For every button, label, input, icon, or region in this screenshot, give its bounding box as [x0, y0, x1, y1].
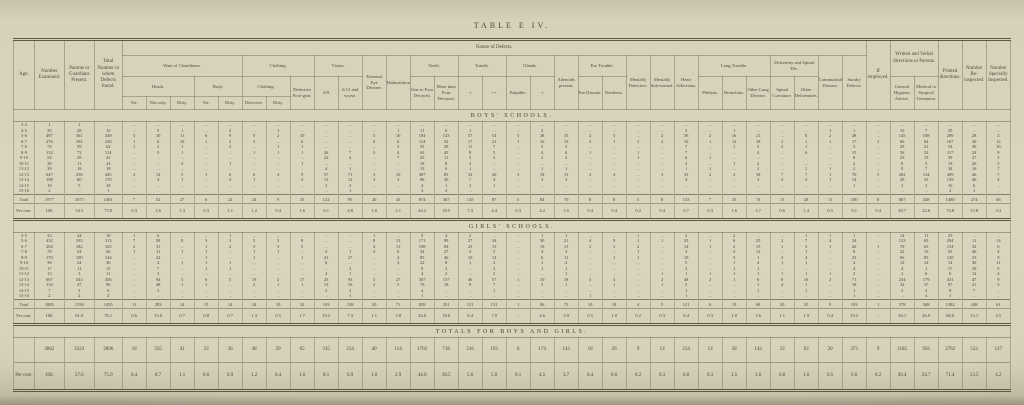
section-heading: BOYS' SCHOOLS. — [14, 110, 1011, 122]
table-cell: 18 — [602, 299, 626, 308]
table-cell: 70 — [554, 194, 578, 203]
table-cell: 315 — [314, 337, 338, 362]
table-cell: 0.4 — [602, 203, 626, 219]
table-cell: 0.3 — [698, 203, 722, 219]
column-header: Teeth. — [410, 56, 458, 77]
table-cell: 4.5 — [530, 362, 554, 390]
table-cell: 6.0 — [674, 362, 698, 390]
table-cell: 448 — [914, 194, 938, 203]
table-cell: 8 — [650, 194, 674, 203]
table-cell: 1480 — [938, 194, 962, 203]
table-cell: 68 — [746, 299, 770, 308]
table-cell: 20 — [818, 337, 842, 362]
table-cell: 11 — [818, 194, 842, 203]
table-cell: 7.3 — [458, 203, 482, 219]
table-cell: 0.3 — [506, 203, 530, 219]
table-cell: 1150 — [64, 299, 94, 308]
table-cell: ... — [506, 308, 530, 324]
page-edge-shadow — [0, 395, 1024, 405]
table-cell: 0.2 — [866, 362, 890, 390]
table-cell: 20 — [362, 194, 386, 203]
table-cell: 1702 — [410, 337, 434, 362]
table-cell: 63 — [794, 337, 818, 362]
table-cell: 3.7 — [746, 203, 770, 219]
column-header: Number Re-inspected. — [962, 40, 986, 110]
table-cell: 4.6 — [530, 308, 554, 324]
table-cell: 1.6 — [794, 362, 818, 390]
column-header: ++ — [482, 77, 506, 110]
table-cell: 283 — [146, 299, 170, 308]
column-header: More than Four Decayed. — [434, 77, 458, 110]
table-cell: 6 — [506, 337, 530, 362]
table-cell: 44.0 — [410, 308, 434, 324]
table-cell: 1.9 — [794, 308, 818, 324]
row-label — [14, 337, 35, 362]
table-cell: 0.3 — [698, 308, 722, 324]
row-label: Total — [14, 299, 35, 308]
table-cell: 2896 — [94, 337, 122, 362]
table-cell: 1.0 — [722, 308, 746, 324]
table-cell: 193 — [314, 299, 338, 308]
table-cell: 0.3 — [122, 203, 146, 219]
table-cell: 43 — [386, 194, 410, 203]
table-cell: 274 — [962, 194, 986, 203]
table-cell: 36 — [218, 337, 242, 362]
table-cell: 607 — [890, 194, 914, 203]
column-header: Printed directions. — [938, 40, 962, 110]
column-header: Palpable. — [506, 77, 530, 110]
table-cell: 2.9 — [386, 362, 410, 390]
table-cell: 10.2 — [314, 308, 338, 324]
table-cell: 0.6 — [602, 362, 626, 390]
table-cell: 6.4 — [458, 308, 482, 324]
table-cell: 66 — [986, 194, 1010, 203]
table-cell: 0.6 — [122, 308, 146, 324]
table-cell: 1.6 — [290, 362, 314, 390]
table-cell: 3.6 — [746, 362, 770, 390]
table-cell: 0.5 — [818, 203, 842, 219]
table-cell: 1977 — [34, 194, 64, 203]
table-cell: 0.2 — [626, 362, 650, 390]
table-cell: 367 — [434, 194, 458, 203]
table-cell: 24 — [242, 194, 266, 203]
table-cell: 0.7 — [170, 308, 194, 324]
column-header: Deafness. — [602, 77, 626, 110]
table-cell: 4.2 — [530, 203, 554, 219]
table-cell: 32 — [290, 299, 314, 308]
table-cell: 74 — [746, 194, 770, 203]
table-cell: 1.2 — [242, 203, 266, 219]
column-header: Sundry Defects. — [842, 56, 866, 110]
table-cell: 180 — [842, 194, 866, 203]
column-header: Clothing. — [242, 77, 290, 97]
column-header: Ear Trouble. — [578, 56, 626, 77]
table-cell: 24.7 — [914, 362, 938, 390]
column-header: Tonsils. — [458, 56, 506, 77]
table-cell: 95 — [338, 194, 362, 203]
table-cell: 193 — [842, 299, 866, 308]
column-header: Nature of Defects. — [122, 40, 866, 56]
table-cell: 0.5 — [266, 308, 290, 324]
table-cell: 18 — [578, 337, 602, 362]
column-header: Other Deformities. — [794, 77, 818, 110]
table-cell: 20 — [770, 299, 794, 308]
table-cell: 48 — [242, 337, 266, 362]
table-cell: 3862 — [34, 337, 64, 362]
table-cell: 19 — [722, 299, 746, 308]
table-cell: 1.1 — [770, 308, 794, 324]
table-cell: 15 — [194, 299, 218, 308]
table-cell: 1.7 — [290, 308, 314, 324]
table-cell: 0.7 — [218, 308, 242, 324]
table-cell: 9.6 — [842, 362, 866, 390]
column-header: Phthisis. — [698, 77, 722, 110]
column-header: Ver. — [122, 97, 146, 110]
table-cell: 29 — [266, 337, 290, 362]
column-header: 6/9 — [314, 77, 338, 110]
table-cell: 3.7 — [554, 362, 578, 390]
table-cell: 100. — [34, 308, 64, 324]
column-header: Adenoids present. — [554, 56, 578, 110]
table-cell: 68.0 — [938, 308, 962, 324]
table-cell: 133 — [674, 194, 698, 203]
table-cell: 1 — [866, 299, 890, 308]
table-cell: 522 — [962, 337, 986, 362]
table-cell: 1461 — [94, 194, 122, 203]
table-cell: 7 — [122, 194, 146, 203]
table-cell: 24 — [242, 299, 266, 308]
table-cell: 1 — [506, 299, 530, 308]
table-cell: 351 — [434, 299, 458, 308]
table-cell: 14 — [170, 299, 194, 308]
table-cell: 2.1 — [386, 203, 410, 219]
column-header: Bronchitis. — [722, 77, 746, 110]
section-heading: GIRLS' SCHOOLS. — [14, 219, 1011, 232]
table-cell: 0.4 — [578, 203, 602, 219]
table-cell: 13 — [650, 337, 674, 362]
column-header: Ver. — [194, 97, 218, 110]
table-cell: 18.5 — [434, 203, 458, 219]
table-cell: 114 — [386, 337, 410, 362]
table-cell: 1.2 — [242, 362, 266, 390]
table-cell: 0.8 — [194, 308, 218, 324]
table-cell: 1185 — [890, 337, 914, 362]
table-cell: ... — [866, 308, 890, 324]
table-cell: 86 — [530, 299, 554, 308]
table-cell: 0.2 — [626, 203, 650, 219]
table-cell: 718 — [434, 337, 458, 362]
table-cell: 0.4 — [266, 203, 290, 219]
table-cell: 121 — [674, 299, 698, 308]
table-cell: 0.4 — [818, 308, 842, 324]
table-cell: 1.1 — [218, 203, 242, 219]
column-header: One to Four Decayed. — [410, 77, 434, 110]
table-cell: 1.3 — [242, 308, 266, 324]
table-cell: 44.2 — [410, 203, 434, 219]
table-cell: 508 — [914, 299, 938, 308]
table-cell: 0.3 — [650, 308, 674, 324]
table-cell: 33 — [770, 337, 794, 362]
column-header: Number Examined. — [34, 40, 64, 110]
table-cell: 71.4 — [938, 362, 962, 390]
column-header: Parents or Guardians Present. — [64, 40, 94, 110]
column-header: Mentally Defective. — [626, 56, 650, 110]
table-cell: 6.7 — [674, 203, 698, 219]
scanned-page: TABLE E IV. Age.Number Examined.Parents … — [0, 0, 1024, 405]
table-cell: 234 — [338, 337, 362, 362]
column-header: + — [458, 77, 482, 110]
row-label: Per cent. — [14, 308, 35, 324]
row-label: Per cent. — [14, 362, 35, 390]
table-cell: 73.9 — [94, 203, 122, 219]
table-cell: 0.8 — [770, 362, 794, 390]
table-cell: 15.0 — [146, 308, 170, 324]
table-cell: 1.0 — [362, 362, 386, 390]
table-cell: 13.1 — [962, 308, 986, 324]
table-cell: 829 — [410, 299, 434, 308]
table-cell: 0.5 — [818, 362, 842, 390]
table-cell: 145 — [458, 194, 482, 203]
table-cell: 9 — [626, 337, 650, 362]
table-cell: 8 — [866, 194, 890, 203]
column-header: Defective. — [242, 97, 266, 110]
table-cell: 2762 — [938, 337, 962, 362]
table-cell: 1282 — [938, 299, 962, 308]
table-cell: 22.6 — [914, 203, 938, 219]
table-cell: 1885 — [34, 299, 64, 308]
column-header: + — [530, 77, 554, 110]
table-cell: 3.5 — [554, 203, 578, 219]
table-cell: 5 — [506, 194, 530, 203]
column-header: General Hygienic Advice. — [890, 77, 914, 110]
table-cell: 0.5 — [578, 308, 602, 324]
column-header: Body. — [194, 77, 242, 97]
table-cell: 216 — [458, 337, 482, 362]
row-label: Total — [14, 194, 35, 203]
table-cell: 100. — [34, 362, 64, 390]
table-cell: 73 — [554, 299, 578, 308]
table-cell: 3.5 — [986, 308, 1010, 324]
column-header: Communicable Disease. — [818, 56, 842, 110]
table-cell: 373 — [842, 337, 866, 362]
table-cell: 5.6 — [458, 362, 482, 390]
column-header: Number Specially Inspected. — [986, 40, 1010, 110]
row-label: Per cent. — [14, 203, 35, 219]
table-cell: 9 — [866, 337, 890, 362]
table-cell: 1.5 — [722, 362, 746, 390]
table-cell: 4 — [626, 299, 650, 308]
table-cell: 8.7 — [146, 362, 170, 390]
column-header: Deformity and Spinal Dis. — [770, 56, 818, 77]
table-cell: 8 — [602, 194, 626, 203]
table-cell: 4.2 — [986, 362, 1010, 390]
table-cell: 26 — [602, 337, 626, 362]
table-cell: 30.4 — [890, 362, 914, 390]
table-cell: 1.1 — [170, 362, 194, 390]
table-cell: 84 — [530, 194, 554, 203]
table-cell: 20 — [362, 299, 386, 308]
column-header: Defective Foot-gear. — [290, 77, 314, 110]
table-row: Total19771073146175227622249331229520438… — [14, 194, 1011, 203]
table-cell: 874 — [410, 194, 434, 203]
table-cell: 3.6 — [746, 308, 770, 324]
table-cell: 0.4 — [650, 203, 674, 219]
table-cell: 0.4 — [266, 362, 290, 390]
table-cell: 4.4 — [482, 203, 506, 219]
table-cell: 18.5 — [434, 362, 458, 390]
table-cell: 1.4 — [794, 203, 818, 219]
table-cell: 3.3 — [986, 203, 1010, 219]
table-cell: 71 — [386, 299, 410, 308]
column-header: Spinal Curvature. — [770, 77, 794, 110]
table-cell: 22 — [218, 194, 242, 203]
table-cell: 8.1 — [314, 362, 338, 390]
table-cell: 143 — [554, 337, 578, 362]
table-cell: 18.6 — [434, 308, 458, 324]
table-cell: 87 — [482, 194, 506, 203]
table-cell: 13 — [698, 337, 722, 362]
table-cell: 0.6 — [770, 203, 794, 219]
table-cell: 2223 — [64, 337, 94, 362]
table-cell: 14 — [218, 299, 242, 308]
table-cell: 138 — [338, 299, 362, 308]
table-cell: 234 — [674, 337, 698, 362]
table-cell: 1.6 — [722, 203, 746, 219]
table-cell: 5 — [626, 194, 650, 203]
table-cell: 75.0 — [94, 362, 122, 390]
table-cell: 35 — [794, 299, 818, 308]
table-cell: 0.2 — [626, 308, 650, 324]
table-cell: 7.0 — [482, 308, 506, 324]
table-cell: 13.8 — [962, 203, 986, 219]
column-header: Want of Cleanliness. — [122, 56, 242, 77]
table-cell: 74.8 — [938, 203, 962, 219]
table-cell: 27 — [170, 194, 194, 203]
table-cell: 23 — [194, 337, 218, 362]
table-row: Per cent.100.57.675.00.48.71.10.60.91.20… — [14, 362, 1011, 390]
table-cell: 122 — [314, 194, 338, 203]
column-header: Written and Verbal directions to Parents… — [890, 40, 938, 77]
table-row: 3862222328961833541233648296531523440114… — [14, 337, 1011, 362]
table-cell: 1.0 — [602, 308, 626, 324]
table-cell: 0.1 — [506, 362, 530, 390]
table-cell: 1.0 — [362, 203, 386, 219]
column-header: Heads. — [122, 77, 194, 97]
table-cell: 57.6 — [64, 362, 94, 390]
table-cell: 335 — [146, 337, 170, 362]
table-cell: 1.3 — [170, 203, 194, 219]
page-title: TABLE E IV. — [0, 21, 1024, 30]
table-cell: 6 — [698, 299, 722, 308]
table-row: Per cent.100.54.373.90.32.61.30.31.11.20… — [14, 203, 1011, 219]
table-cell: 30.1 — [890, 308, 914, 324]
table-cell: 44.0 — [410, 362, 434, 390]
table-cell: 1.1 — [362, 308, 386, 324]
column-header: Ear Disease. — [578, 77, 602, 110]
table-cell: 41 — [170, 337, 194, 362]
table-cell: 10 — [578, 299, 602, 308]
table-cell: 65 — [290, 337, 314, 362]
table-cell: 4.8 — [338, 203, 362, 219]
table-cell: 0.6 — [194, 362, 218, 390]
table-cell: 956 — [914, 337, 938, 362]
table-cell: 1073 — [64, 194, 94, 203]
column-header: External Eye Disease. — [362, 56, 386, 110]
table-container: Age.Number Examined.Parents or Guardians… — [13, 38, 1011, 392]
table-cell: 9.1 — [842, 203, 866, 219]
table-cell: 7.3 — [338, 308, 362, 324]
table-row: Per cent.100.61.076.10.615.00.70.80.71.3… — [14, 308, 1011, 324]
table-cell: 121 — [458, 299, 482, 308]
table-cell: 0.3 — [698, 362, 722, 390]
section-heading: TOTALS FOR BOYS AND GIRLS. — [14, 324, 1011, 337]
table-cell: 0.3 — [194, 203, 218, 219]
table-cell: 5.0 — [482, 362, 506, 390]
column-header: Dirty. — [170, 97, 194, 110]
table-cell: 2.6 — [146, 203, 170, 219]
column-header: Total Number in whom Defects found. — [94, 40, 122, 110]
table-cell: 6 — [194, 194, 218, 203]
column-header: Malnutrition. — [386, 56, 410, 110]
table-cell: 26.9 — [914, 308, 938, 324]
table-cell: 76.1 — [94, 308, 122, 324]
column-header: Clothing. — [242, 56, 314, 77]
column-header: Nits only. — [146, 97, 170, 110]
table-cell: 13.5 — [962, 362, 986, 390]
table-cell: 13 — [770, 194, 794, 203]
table-cell: 0.4 — [578, 362, 602, 390]
column-header: Other Lung Disease. — [746, 77, 770, 110]
table-cell: 0.4 — [122, 362, 146, 390]
column-header: Vision. — [314, 56, 362, 77]
table-cell: 1435 — [94, 299, 122, 308]
column-header: Age. — [14, 40, 35, 110]
table-cell: 10 — [266, 299, 290, 308]
table-cell: 6.9 — [338, 362, 362, 390]
table-cell: 40 — [362, 337, 386, 362]
table-cell: 28 — [794, 194, 818, 203]
table-cell: 0.4 — [866, 203, 890, 219]
table-cell: 33 — [722, 194, 746, 203]
table-cell: 142 — [746, 337, 770, 362]
table-cell: 578 — [890, 299, 914, 308]
table-cell: 5 — [650, 299, 674, 308]
table-cell: 3.8 — [386, 308, 410, 324]
table-cell: 6.1 — [314, 203, 338, 219]
column-header: 6/12 and worse. — [338, 77, 362, 110]
table-cell: 61.0 — [64, 308, 94, 324]
table-cell: 248 — [962, 299, 986, 308]
table-cell: 131 — [482, 299, 506, 308]
column-header: Lung Trouble. — [698, 56, 770, 77]
column-header: Dirty. — [266, 97, 290, 110]
column-header: Dirty. — [218, 97, 242, 110]
column-header: Heart Affections. — [674, 56, 698, 110]
table-cell: 30.7 — [890, 203, 914, 219]
table-cell: 127 — [986, 337, 1010, 362]
table-cell: 61 — [986, 299, 1010, 308]
table-cell: 33 — [290, 194, 314, 203]
table-cell: 9 — [266, 194, 290, 203]
table-cell: 174 — [530, 337, 554, 362]
table-cell: 9 — [818, 299, 842, 308]
table-cell: 0.9 — [218, 362, 242, 390]
table-cell: 54.3 — [64, 203, 94, 219]
table-cell: 10.2 — [842, 308, 866, 324]
column-header: If employed. — [866, 40, 890, 110]
table-cell: 52 — [146, 194, 170, 203]
table-cell: 18 — [122, 337, 146, 362]
